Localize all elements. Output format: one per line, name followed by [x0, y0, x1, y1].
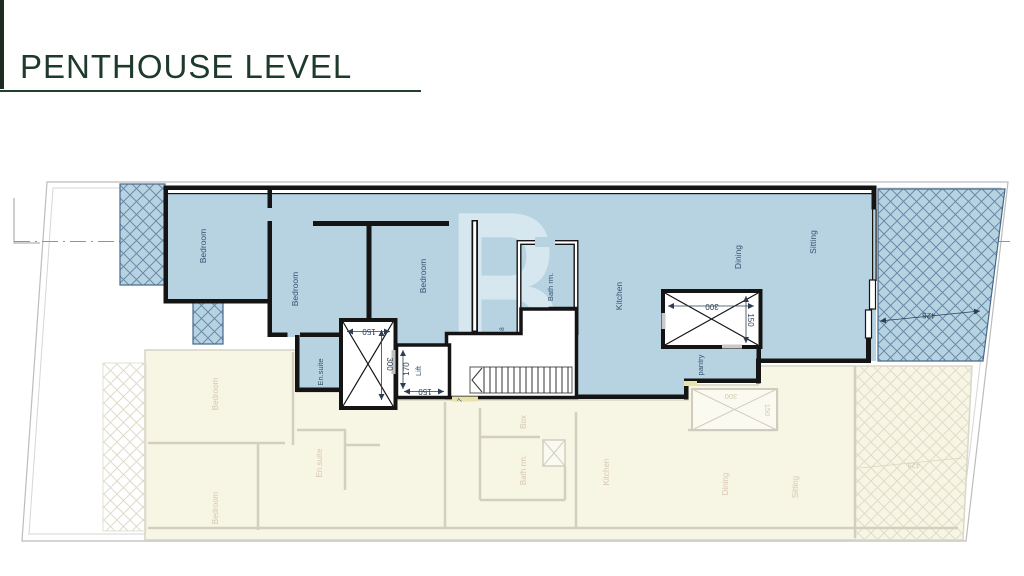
dim-lift-depth: 170 — [402, 362, 411, 376]
dim-void-width: 300 — [705, 302, 719, 311]
floor-plan-drawing: Bedroom Bedroom En.suite Box Bath rm. Ki… — [0, 0, 1024, 576]
lower-terrace-right-hatch — [855, 366, 972, 540]
room-label-bedroom-1: Bedroom — [198, 229, 208, 264]
terrace-small — [193, 302, 223, 344]
dim-shaft-depth: 300 — [385, 357, 394, 371]
room-label-bathroom: Bath rm. — [546, 273, 555, 301]
lower-dim-300: 300 — [725, 392, 738, 401]
lower-dim-425: 425 — [907, 461, 920, 471]
room-label-ensuite: En.suite — [316, 358, 325, 385]
lower-room-label-ensuite: En.suite — [315, 448, 324, 477]
room-label-dining: Dining — [733, 245, 743, 269]
lower-room-label-bathroom: Bath rm. — [519, 455, 528, 485]
lower-room-label-box: Box — [519, 415, 528, 429]
terrace-right — [878, 189, 1005, 361]
lower-room-label-bedroom-2: Bedroom — [211, 491, 220, 524]
pantry-door-sill — [684, 381, 697, 386]
lower-terrace-left-hatch — [103, 363, 146, 531]
staircase — [470, 367, 572, 393]
room-label-pantry: pantry — [696, 354, 705, 375]
stair-count-8: 8 — [499, 327, 506, 331]
room-label-bedroom-2: Bedroom — [290, 272, 300, 307]
room-label-lift: Lift — [414, 365, 423, 376]
lower-dim-150: 150 — [763, 404, 772, 417]
room-label-sitting: Sitting — [808, 230, 818, 254]
room-label-kitchen: Kitchen — [614, 282, 624, 311]
dim-shaft-width: 150 — [362, 327, 376, 336]
floor-plan-page: PENTHOUSE LEVEL — [0, 0, 1024, 576]
room-label-bedroom-3: Bedroom — [418, 259, 428, 294]
lower-room-label-dining: Dining — [721, 473, 730, 496]
dim-void-depth: 150 — [746, 313, 755, 327]
lower-shaft-small — [543, 440, 565, 466]
dim-lift-width: 150 — [418, 387, 432, 396]
dim-terrace-width: 425 — [921, 311, 935, 321]
lower-room-label-bedroom-1: Bedroom — [211, 377, 220, 410]
lower-room-label-sitting: Sitting — [791, 476, 800, 498]
terrace-left — [120, 184, 165, 285]
lower-room-label-kitchen: Kitchen — [602, 459, 611, 486]
